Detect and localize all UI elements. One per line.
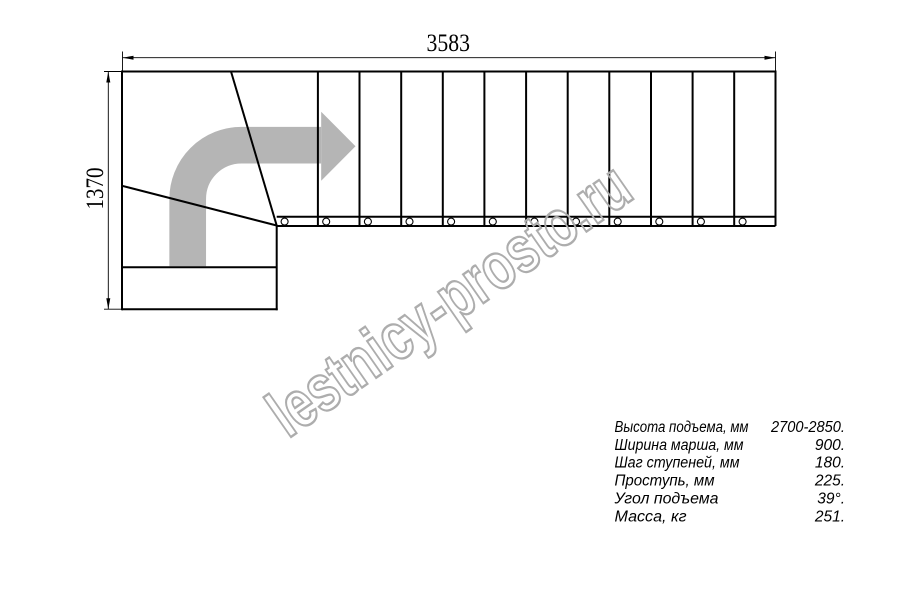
- svg-text:225.: 225.: [814, 473, 845, 490]
- svg-text:2700-2850.: 2700-2850.: [770, 419, 845, 436]
- svg-text:180.: 180.: [815, 455, 845, 472]
- svg-text:900.: 900.: [815, 437, 845, 454]
- svg-text:Масса, кг: Масса, кг: [615, 508, 687, 525]
- svg-text:251.: 251.: [814, 508, 845, 525]
- svg-text:Шаг ступеней, мм: Шаг ступеней, мм: [615, 455, 740, 472]
- svg-text:Ширина марша, мм: Ширина марша, мм: [615, 437, 744, 454]
- svg-text:Угол подъема: Угол подъема: [613, 490, 718, 507]
- svg-text:1370: 1370: [82, 168, 109, 210]
- svg-text:Проступь, мм: Проступь, мм: [615, 473, 715, 490]
- svg-text:39°.: 39°.: [817, 490, 845, 507]
- svg-text:Высота подъема, мм: Высота подъема, мм: [615, 419, 749, 436]
- svg-text:3583: 3583: [427, 30, 471, 57]
